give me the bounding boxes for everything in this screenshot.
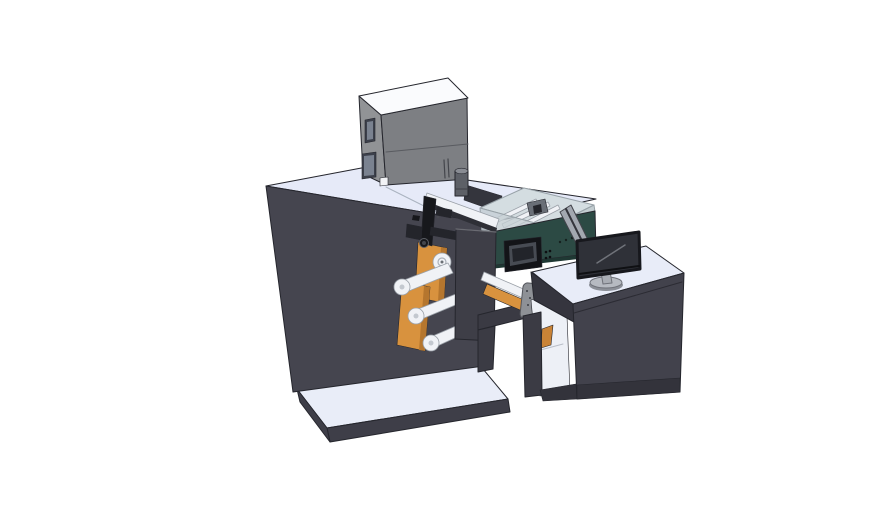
hmi-button — [545, 251, 548, 254]
shelf-orange-item — [541, 325, 553, 348]
cylinder-body — [455, 171, 468, 196]
device-dot — [526, 290, 528, 292]
top-printer-box — [359, 78, 468, 186]
printhead-bit — [412, 215, 420, 221]
box-vent-slot-lower-inner — [364, 155, 374, 176]
green-vent-dot — [559, 241, 561, 243]
printhead-block — [406, 224, 422, 240]
cylinder-cap — [455, 168, 468, 174]
desk-left-leg — [523, 312, 542, 397]
mandrel-center — [441, 261, 444, 264]
idler-roller-2-hub — [414, 314, 419, 319]
cad-viewport — [0, 0, 888, 522]
exhaust-cylinder — [455, 168, 468, 196]
box-corner-chip — [380, 177, 388, 186]
hmi-button — [545, 257, 548, 260]
idler-roller-3-hub — [429, 341, 434, 346]
device-dot — [529, 297, 531, 299]
hmi-button — [549, 250, 552, 253]
green-vent-dot — [565, 239, 567, 241]
machine-render — [0, 0, 888, 522]
device-dot — [527, 304, 529, 306]
top-bolt-dot — [437, 216, 439, 218]
printhead-knob-center — [422, 241, 426, 245]
bridge-left-leg — [478, 326, 495, 372]
idler-roller-1-hub — [400, 285, 405, 290]
box-vent-slot-upper-inner — [367, 121, 373, 140]
hmi-button — [549, 256, 552, 259]
